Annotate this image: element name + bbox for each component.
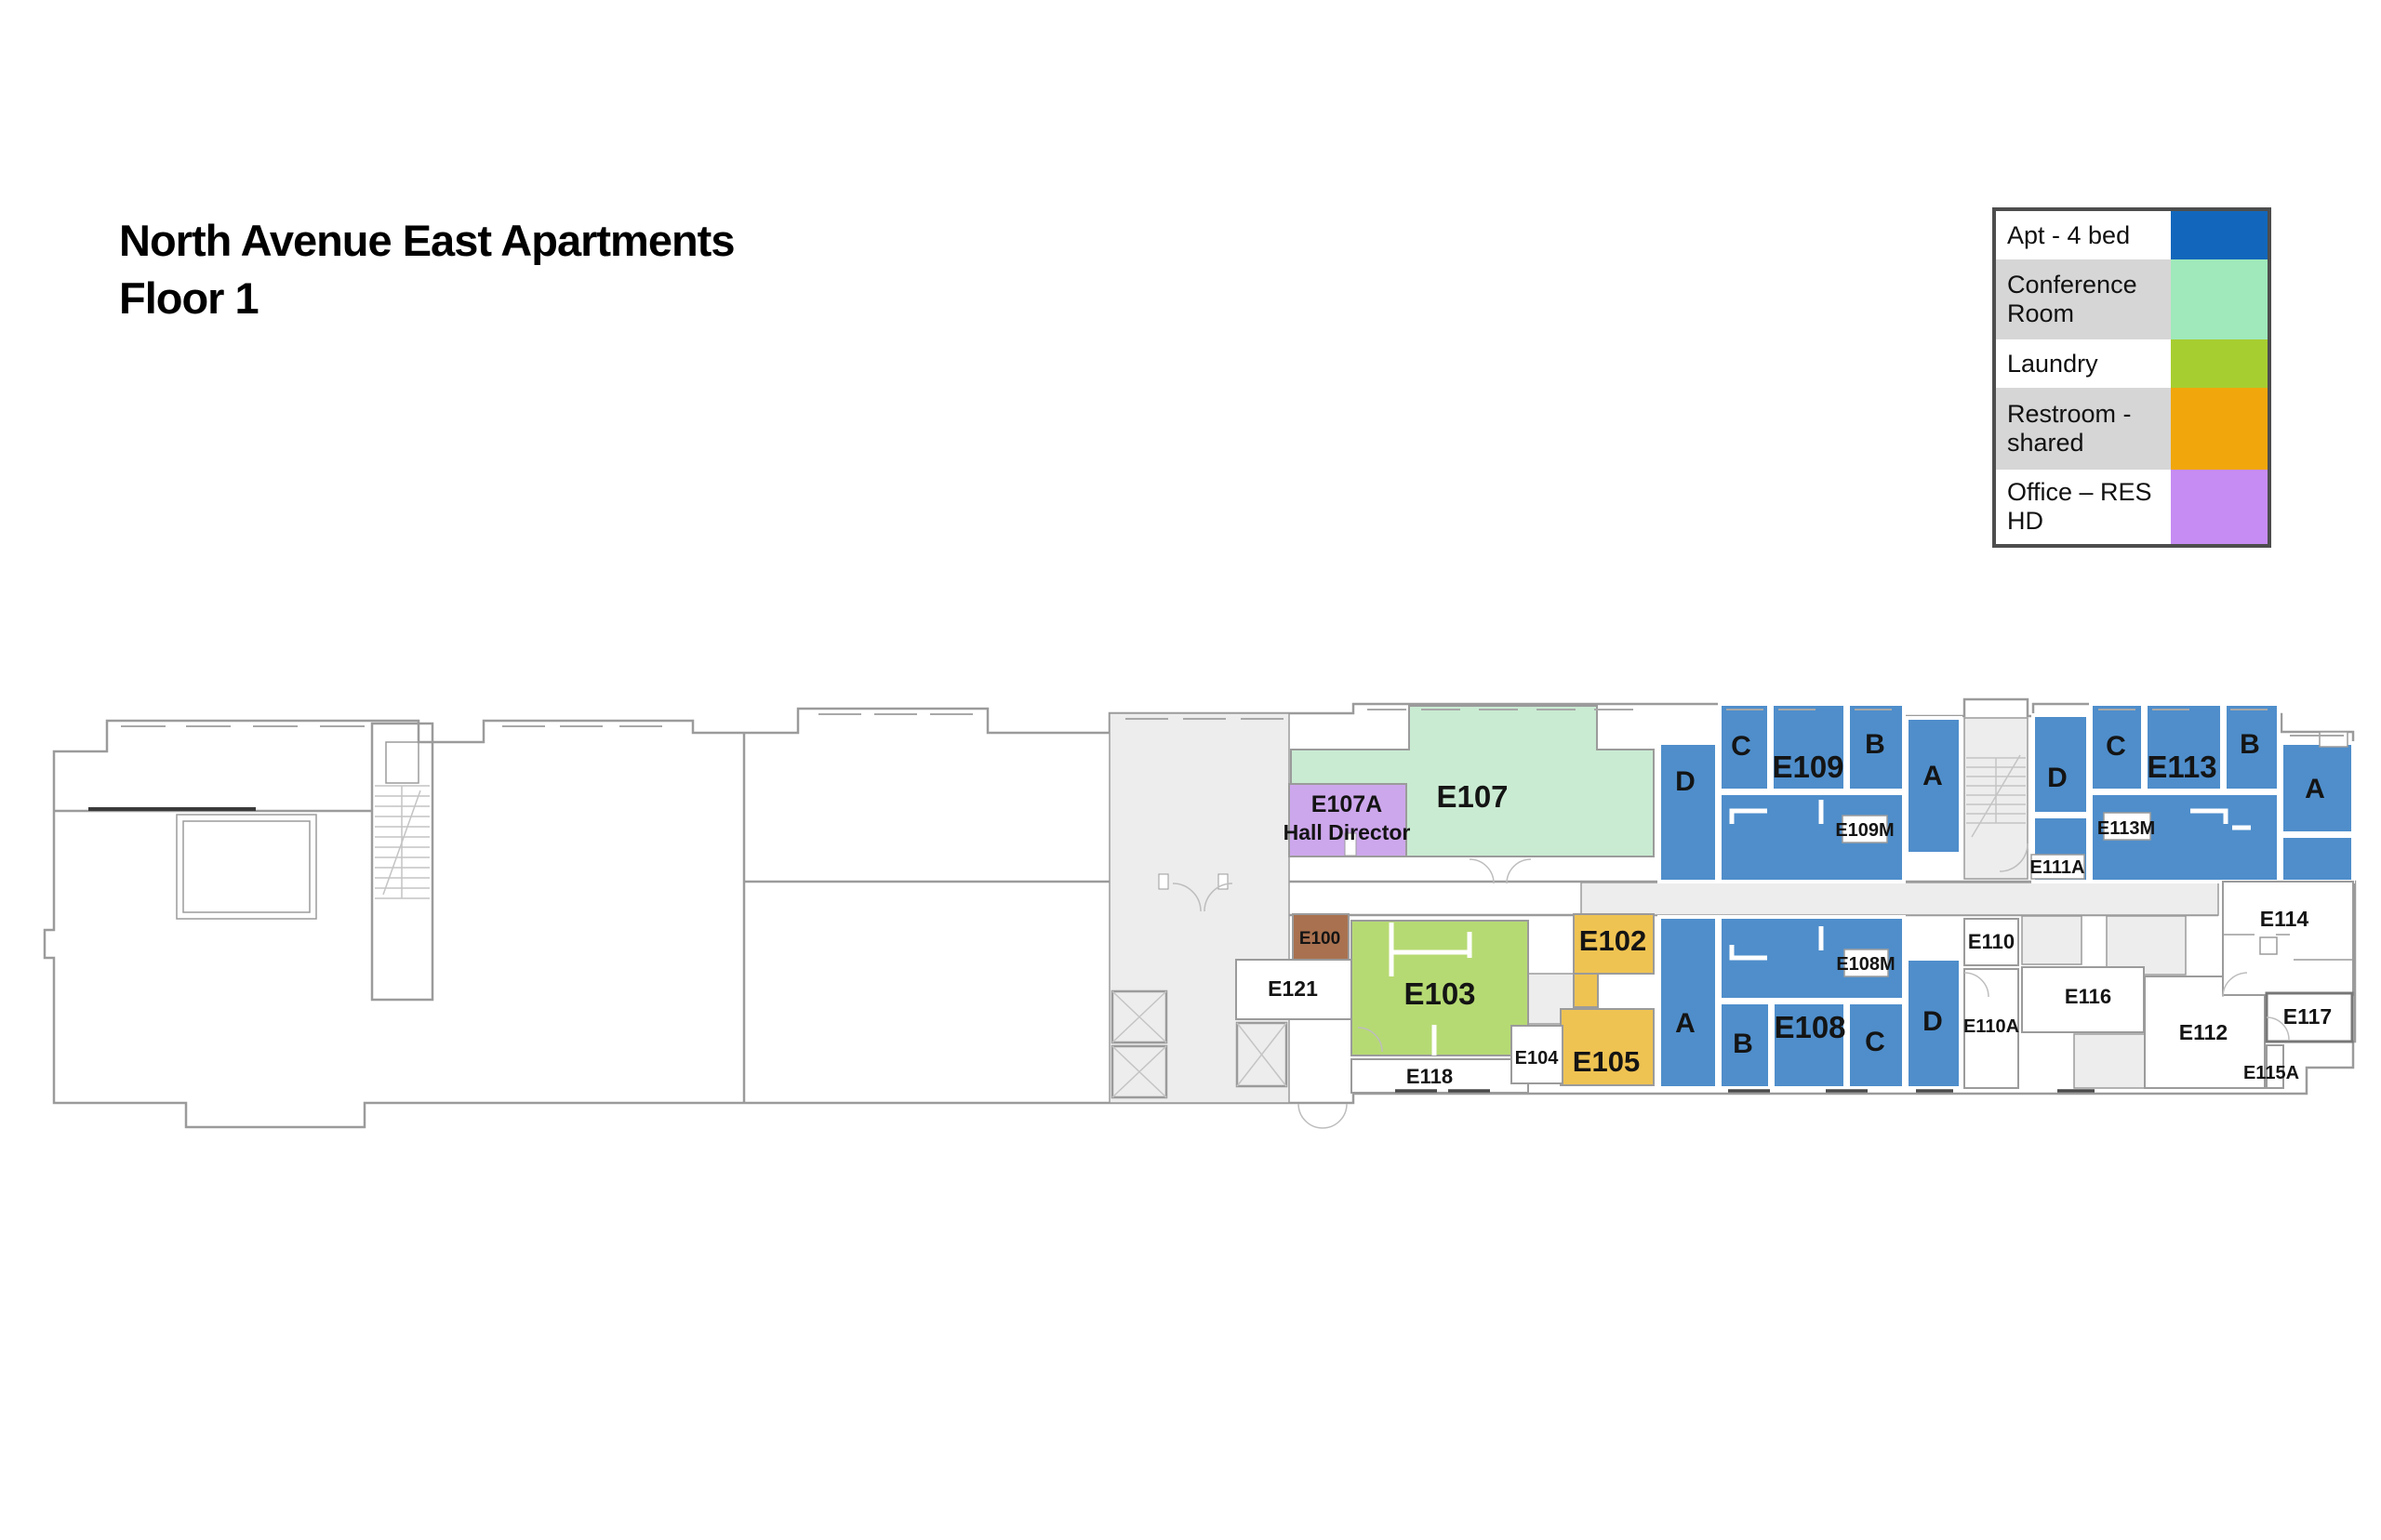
floorplan-page: North Avenue East Apartments Floor 1 Apt… [0,0,2381,1540]
lobby-area [1110,713,1289,1103]
room-e114: E114 [2223,882,2353,995]
unit-e108-a [1659,917,1717,1088]
unit-label-e109-d: D [1675,766,1696,797]
unit-label-e113-c: C [2106,731,2126,762]
room-label-e114: E114 [2260,907,2309,931]
room-label-e110a: E110A [1963,1016,2019,1037]
room-label-e104: E104 [1515,1048,1560,1069]
courtyard [177,815,316,919]
unit-label-e113-a: A [2305,774,2325,804]
room-e105: E105 [1561,1009,1654,1085]
room-e100: E100 [1293,914,1349,960]
room-e116: E116 [2022,967,2144,1032]
unit-e109-d [1659,743,1717,882]
room-label-e107: E107 [1436,779,1508,814]
room-e110: E110 [1964,919,2018,965]
room-label-e111a: E111A [2030,857,2085,878]
room-label-e121: E121 [1268,976,1318,1001]
room-label-e116: E116 [2065,985,2111,1008]
room-e113-south [2281,836,2353,882]
room-label-e110: E110 [1968,930,2015,953]
room-e103: E103 [1351,921,1528,1055]
unit-label-e113-d: D [2047,763,2068,793]
room-sublabel-e107a: Hall Director [1284,820,1411,844]
room-e102: E102 [1574,914,1654,1007]
room-label-e118: E118 [1406,1065,1453,1088]
floorplan-drawing: E107 E107A Hall Director E100 E103 E102 [0,0,2381,1540]
gray-room-3 [2074,1034,2145,1088]
room-label-e113: E113 [2147,750,2216,784]
room-label-e108: E108 [1774,1010,1845,1044]
room-e117: E117 [2267,993,2352,1042]
unit-label-e113-b: B [2240,729,2260,760]
room-e111a: E111A [2030,855,2085,879]
corridor-east [1581,883,2218,915]
unit-label-e108-d: D [1922,1006,1943,1037]
room-label-e108m: E108M [1836,954,1895,975]
gray-room-1 [2022,916,2082,964]
room-label-e117: E117 [2283,1004,2332,1029]
stairwell-west [372,724,432,1000]
unit-label-e108-b: B [1733,1029,1753,1059]
room-label-e105: E105 [1573,1045,1640,1078]
room-label-e100: E100 [1299,929,1340,949]
unit-label-e109-b: B [1865,729,1885,760]
room-label-e115a: E115A [2243,1063,2299,1083]
room-e104: E104 [1511,1026,1563,1083]
room-label-e109m: E109M [1835,820,1894,841]
room-label-e103: E103 [1403,976,1475,1011]
room-e118: E118 [1351,1059,1528,1093]
room-e121: E121 [1236,960,1351,1019]
room-label-e102: E102 [1579,924,1646,957]
gray-room-2 [2107,916,2186,975]
unit-label-e108-c: C [1865,1027,1885,1057]
room-label-e113m: E113M [2097,818,2155,839]
room-label-e112: E112 [2179,1020,2228,1044]
apartment-block-e109: E109 D C B A E109M [1659,704,1961,882]
room-e110a: E110A [1963,969,2019,1088]
apartment-block-e108: E108 A B C D E108M [1659,917,1961,1088]
room-label-e107a: E107A [1311,791,1382,817]
room-e107a: E107A Hall Director [1284,784,1411,856]
room-label-e109: E109 [1772,750,1843,784]
unit-label-e108-a: A [1675,1008,1696,1039]
unit-label-e109-a: A [1922,761,1943,791]
unit-label-e109-c: C [1731,731,1751,762]
